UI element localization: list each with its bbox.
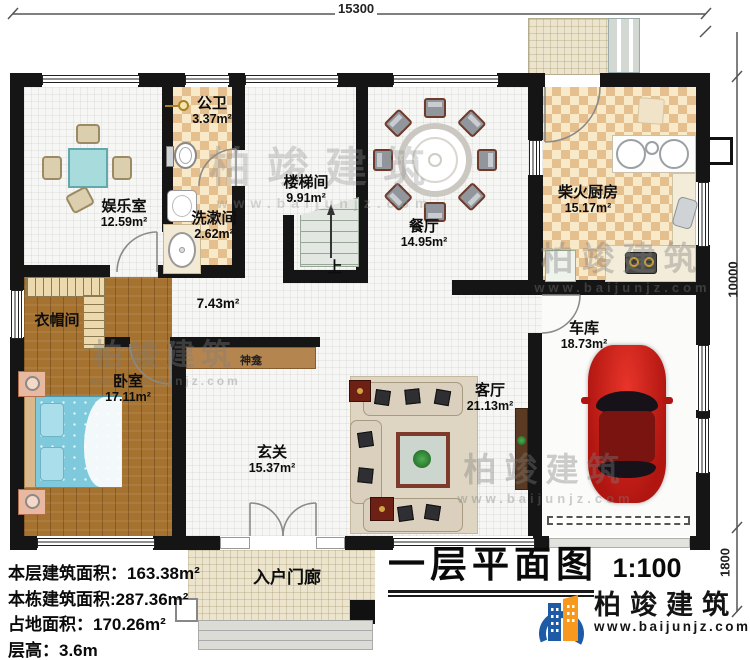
window-serving-hatch — [529, 140, 542, 177]
pillow — [40, 403, 64, 437]
car-cabin — [599, 411, 655, 463]
sofa-pillow — [404, 388, 420, 404]
bath-light-arm — [165, 105, 178, 107]
door-frame — [220, 537, 250, 549]
chair — [373, 149, 393, 171]
shrine-label: 神龛 — [240, 351, 262, 369]
basin-drain — [179, 247, 185, 253]
window — [698, 418, 709, 474]
door-frame — [316, 537, 345, 549]
kitchen-basin — [616, 139, 646, 169]
wall — [172, 337, 186, 536]
porch-steps — [198, 620, 373, 650]
wall-niche — [710, 137, 733, 165]
wall — [345, 536, 393, 550]
lamp — [25, 494, 40, 509]
window — [245, 75, 339, 85]
tv-cabinet — [515, 408, 528, 490]
wall — [452, 280, 710, 295]
room-label-entertainment: 娱乐室12.59m² — [101, 198, 148, 230]
wall — [10, 337, 24, 550]
room-label-public-bath: 公卫3.37m² — [192, 95, 232, 127]
wall — [228, 73, 245, 87]
car-mirror — [663, 397, 673, 404]
stairs-up-label: 上 — [327, 259, 342, 277]
kitchen-mat — [637, 97, 665, 125]
title-scale: 1:100 — [612, 553, 681, 583]
wall — [138, 73, 185, 87]
wall — [696, 472, 710, 550]
wall — [528, 87, 543, 140]
plant — [517, 436, 526, 445]
wall — [528, 333, 542, 536]
plant — [413, 450, 431, 468]
bed-headboard — [24, 396, 36, 488]
game-table — [68, 148, 108, 188]
wall — [24, 265, 110, 277]
brand-logo-icon — [534, 591, 586, 651]
chair — [112, 156, 132, 180]
title-block: 一层平面图 1:100 — [388, 534, 682, 597]
window — [185, 75, 230, 85]
car-mirror — [581, 397, 591, 404]
window — [698, 345, 709, 412]
sofa-pillow — [424, 504, 441, 521]
wardrobe — [83, 295, 105, 349]
chair — [42, 156, 62, 180]
side-table — [349, 380, 371, 402]
wall — [337, 73, 393, 87]
bath-light-icon — [178, 100, 189, 111]
wall — [696, 245, 710, 345]
patio-wall-section — [608, 18, 640, 73]
brand-logo: 柏竣建筑 www.baijunjz.com — [534, 591, 750, 651]
brand-website: www.baijunjz.com — [594, 619, 750, 634]
room-label-dining: 餐厅14.95m² — [401, 218, 448, 250]
wall — [696, 73, 710, 182]
dimension-porch: 1800 — [718, 530, 733, 596]
wall — [528, 175, 543, 283]
room-label-foyer: 玄关15.37m² — [249, 444, 296, 476]
room-label-cloakroom: 衣帽间 — [34, 312, 79, 329]
fridge — [545, 250, 576, 282]
kitchen-basin — [659, 139, 689, 169]
window — [37, 538, 155, 548]
sofa-pillow — [397, 505, 414, 522]
wall — [497, 73, 545, 87]
chair — [76, 124, 100, 144]
car-rear-window — [598, 461, 656, 478]
room-label-garage: 车库18.73m² — [561, 320, 608, 352]
car — [588, 345, 666, 503]
info-line: 层高：3.6m — [8, 638, 200, 660]
window — [393, 75, 499, 85]
room-label-washroom: 洗漱间2.62m² — [191, 210, 236, 242]
page-title: 一层平面图 — [388, 544, 598, 585]
window — [11, 290, 23, 339]
dining-table-center — [428, 153, 442, 167]
lamp — [25, 376, 40, 391]
washing-machine-door — [172, 195, 192, 217]
wall — [600, 73, 710, 87]
chair — [424, 98, 446, 118]
info-panel: 本层建筑面积：163.38m² 本栋建筑面积:287.36m² 占地面积：170… — [8, 561, 200, 660]
toilet-bowl-inner — [179, 147, 192, 164]
room-label-porch: 入户门廊 — [253, 568, 321, 588]
info-line: 本层建筑面积：163.38m² — [8, 561, 200, 587]
room-label-corridor: 7.43m² — [197, 296, 240, 312]
room-label-living: 客厅21.13m² — [467, 382, 514, 414]
patio-hatch — [528, 18, 610, 75]
wall — [232, 87, 245, 150]
wardrobe — [26, 277, 105, 297]
sofa-pillow — [374, 389, 391, 406]
brand-name: 柏竣建筑 — [594, 591, 750, 619]
chair — [477, 149, 497, 171]
window — [42, 75, 140, 85]
pillow — [40, 447, 64, 481]
car-windshield — [596, 391, 658, 413]
wall — [153, 536, 220, 550]
sofa-pillow — [357, 431, 374, 448]
info-line: 本栋建筑面积:287.36m² — [8, 587, 200, 613]
burner — [644, 257, 654, 267]
dimension-right: 10000 — [726, 244, 741, 316]
info-line: 占地面积：170.26m² — [8, 612, 200, 638]
wall — [170, 337, 320, 347]
room-label-bedroom: 卧室17.11m² — [105, 373, 151, 405]
room-label-stairwell: 楼梯间9.91m² — [283, 174, 328, 206]
blanket-fold — [84, 397, 122, 487]
wall — [103, 337, 130, 347]
dimension-top: 15300 — [335, 1, 377, 16]
toilet-tank — [166, 146, 174, 167]
room-label-kitchen: 柴火厨房15.17m² — [558, 184, 618, 216]
burner — [629, 257, 639, 267]
window — [698, 182, 709, 247]
wall — [10, 536, 37, 550]
kitchen-basin-small — [645, 141, 659, 155]
sofa-pillow — [357, 467, 373, 483]
wall — [10, 73, 24, 290]
side-table — [370, 497, 394, 521]
garage-door-dashed — [547, 516, 690, 525]
floor-plan: 上 神龛 — [0, 0, 750, 660]
sofa-pillow — [434, 389, 451, 406]
